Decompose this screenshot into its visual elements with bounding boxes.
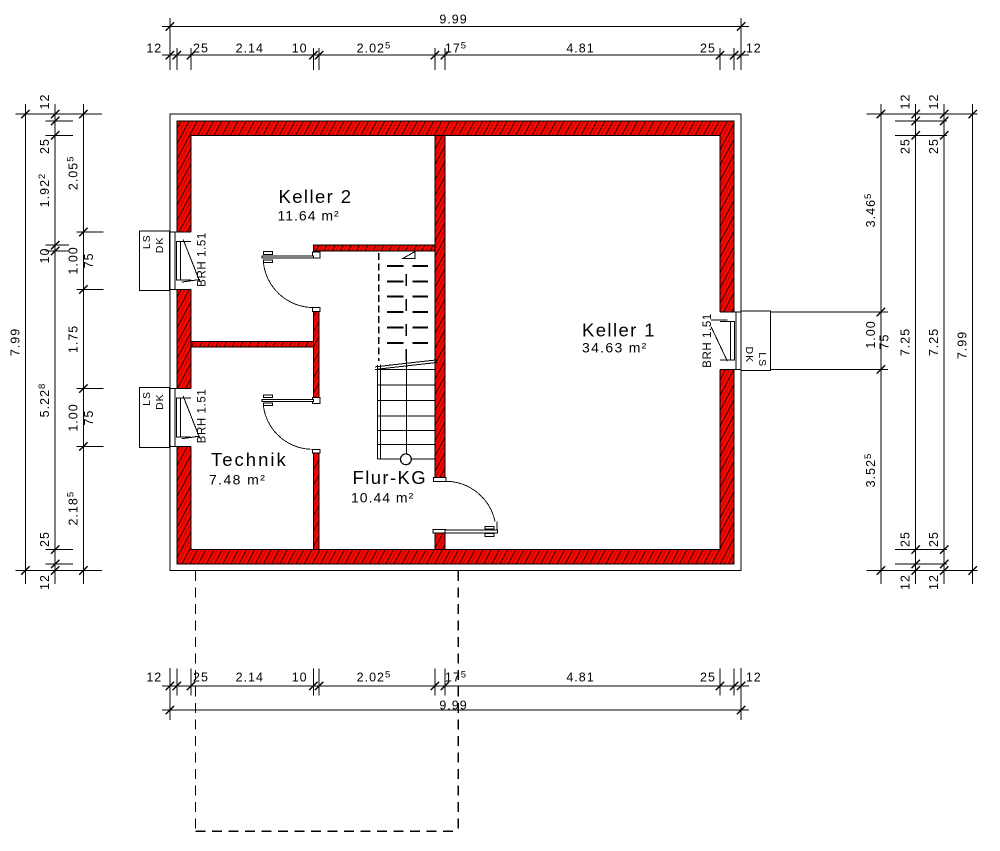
svg-text:7.48 m²: 7.48 m² [209,472,266,488]
svg-text:34.63 m²: 34.63 m² [582,340,648,356]
svg-text:4.81: 4.81 [566,42,594,56]
svg-text:1.00: 1.00 [67,246,81,274]
svg-text:LS: LS [141,234,153,249]
svg-text:25: 25 [700,42,716,56]
svg-text:7.25: 7.25 [899,328,913,356]
svg-text:1.00: 1.00 [67,403,81,431]
svg-text:LS: LS [756,352,768,367]
svg-text:12: 12 [899,574,913,590]
svg-text:9.99: 9.99 [439,699,467,713]
svg-text:25: 25 [899,531,913,547]
svg-text:25: 25 [927,531,941,547]
svg-text:7.99: 7.99 [956,331,970,359]
svg-text:25: 25 [700,671,716,685]
svg-text:25: 25 [927,138,941,154]
svg-text:4.81: 4.81 [566,671,594,685]
svg-text:10: 10 [292,671,308,685]
svg-text:1.00: 1.00 [864,320,878,348]
svg-text:DK: DK [743,347,755,364]
svg-text:9.99: 9.99 [439,13,467,27]
svg-text:75: 75 [878,334,892,350]
svg-text:25: 25 [193,671,209,685]
svg-text:12: 12 [927,94,941,110]
svg-text:BRH 1.51: BRH 1.51 [197,232,209,287]
svg-text:25: 25 [38,138,52,154]
svg-text:25: 25 [193,42,209,56]
svg-text:DK: DK [154,237,166,254]
svg-text:BRH 1.51: BRH 1.51 [197,389,209,444]
svg-text:11.64 m²: 11.64 m² [278,208,340,224]
svg-text:12: 12 [146,671,162,685]
svg-text:BRH 1.51: BRH 1.51 [702,313,714,368]
svg-text:7.25: 7.25 [927,328,941,356]
svg-text:Flur-KG: Flur-KG [353,467,428,488]
svg-text:25: 25 [899,138,913,154]
svg-text:75: 75 [82,410,96,426]
svg-text:10: 10 [38,248,52,264]
svg-text:25: 25 [38,531,52,547]
svg-text:10: 10 [292,42,308,56]
svg-text:12: 12 [899,94,913,110]
svg-text:2.14: 2.14 [236,42,264,56]
svg-text:12: 12 [38,94,52,110]
svg-text:12: 12 [746,671,762,685]
svg-text:12: 12 [927,574,941,590]
svg-text:75: 75 [82,252,96,268]
svg-text:12: 12 [746,42,762,56]
svg-text:2.14: 2.14 [236,671,264,685]
svg-text:Keller 1: Keller 1 [582,320,656,341]
svg-text:DK: DK [154,393,166,410]
svg-text:Technik: Technik [211,449,288,470]
svg-text:10.44 m²: 10.44 m² [351,490,414,506]
svg-text:1.75: 1.75 [67,325,81,353]
svg-text:Keller 2: Keller 2 [279,186,353,207]
svg-text:LS: LS [141,391,153,406]
svg-text:12: 12 [38,574,52,590]
svg-text:7.99: 7.99 [8,328,22,356]
svg-text:12: 12 [146,42,162,56]
